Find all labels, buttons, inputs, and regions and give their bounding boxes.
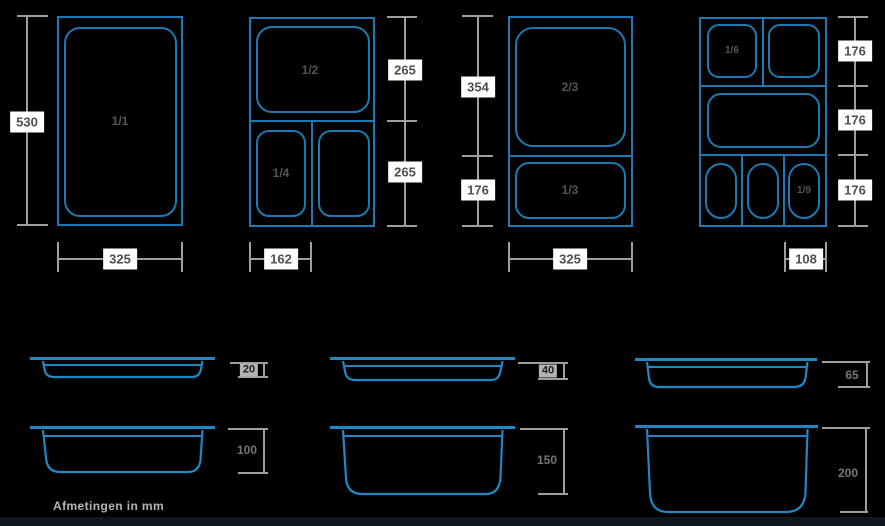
dimension-tick	[462, 155, 493, 157]
dimension-tick	[838, 225, 868, 227]
dimension-tick	[17, 15, 48, 17]
pan-opening	[768, 24, 820, 78]
bottom-strip	[0, 517, 885, 526]
fraction-label: 2/3	[562, 81, 579, 93]
height-dimension-label: 354	[461, 77, 495, 98]
dimension-tick	[462, 15, 493, 17]
pan-opening	[705, 163, 737, 219]
pan-body	[343, 430, 503, 494]
dimensions-unit-note: Afmetingen in mm	[53, 499, 164, 513]
pan-divider	[741, 154, 743, 227]
width-dimension-label: 325	[553, 249, 587, 270]
dimension-tick	[840, 511, 868, 513]
dimension-tick	[822, 427, 870, 429]
dimension-line	[404, 17, 406, 227]
dimension-tick	[784, 242, 786, 272]
pan-body	[43, 361, 203, 377]
fraction-label: 1/3	[562, 184, 579, 196]
pan-profile-40mm	[330, 357, 515, 382]
pan-rim	[330, 357, 515, 360]
dimension-tick	[310, 242, 312, 272]
dimension-line	[263, 362, 265, 378]
dimension-tick	[387, 16, 417, 18]
width-dimension-label: 108	[789, 249, 823, 270]
dimension-tick	[387, 120, 417, 122]
pan-rim	[635, 358, 817, 361]
dimension-line	[263, 428, 265, 474]
dimension-tick	[520, 428, 568, 430]
pan-opening	[707, 93, 820, 148]
fraction-label: 1/2	[302, 64, 319, 76]
height-dimension-label: 176	[838, 110, 872, 131]
depth-dimension-label: 100	[237, 444, 257, 456]
pan-rim	[635, 425, 818, 428]
dimension-tick	[228, 428, 268, 430]
dimension-line	[866, 361, 868, 388]
pan-divider	[311, 120, 313, 227]
pan-body	[647, 429, 808, 512]
depth-dimension-label: 20	[240, 364, 258, 377]
dimension-tick	[838, 16, 868, 18]
dimension-tick	[838, 85, 868, 87]
dimension-line	[563, 428, 565, 495]
pan-profile-200mm	[632, 425, 819, 515]
height-dimension-label: 176	[838, 41, 872, 62]
dimension-line	[865, 427, 867, 513]
dimension-tick	[462, 225, 493, 227]
pan-opening	[747, 163, 779, 219]
height-dimension-label: 176	[461, 180, 495, 201]
dimension-tick	[17, 224, 48, 226]
pan-profile-20mm	[30, 357, 215, 379]
pan-rim	[30, 426, 215, 429]
fraction-label: 1/4	[273, 167, 290, 179]
dimension-tick	[249, 242, 251, 272]
pan-divider	[762, 17, 764, 87]
pan-rim	[330, 426, 515, 429]
fraction-label: 1/9	[797, 186, 811, 196]
dimension-tick	[825, 242, 827, 272]
pan-rim	[30, 357, 215, 360]
pan-divider	[699, 154, 827, 156]
height-dimension-label: 530	[10, 112, 44, 133]
pan-divider	[508, 155, 633, 157]
pan-opening	[318, 130, 370, 217]
fraction-label: 1/6	[725, 46, 739, 56]
width-dimension-label: 162	[264, 249, 298, 270]
gastronorm-sizes-diagram: 1/1 530 325 1/2 1/4 265 265 162	[0, 0, 885, 526]
depth-dimension-label: 200	[838, 467, 858, 479]
pan-body	[647, 362, 808, 387]
pan-profile-65mm	[632, 358, 819, 389]
height-dimension-label: 265	[388, 162, 422, 183]
depth-dimension-label: 40	[539, 365, 557, 378]
dimension-tick	[508, 242, 510, 272]
width-dimension-label: 325	[103, 249, 137, 270]
pan-body	[343, 361, 503, 380]
pan-divider	[783, 154, 785, 227]
depth-dimension-label: 65	[845, 369, 858, 381]
height-dimension-label: 265	[388, 60, 422, 81]
dimension-tick	[181, 242, 183, 272]
height-dimension-label: 176	[838, 180, 872, 201]
fraction-label: 1/1	[112, 115, 129, 127]
pan-profile-150mm	[330, 426, 515, 497]
dimension-tick	[57, 242, 59, 272]
depth-dimension-label: 150	[537, 454, 557, 466]
dimension-tick	[631, 242, 633, 272]
dimension-tick	[822, 361, 870, 363]
dimension-tick	[387, 225, 417, 227]
dimension-tick	[838, 154, 868, 156]
pan-profile-100mm	[30, 426, 215, 475]
dimension-line	[563, 362, 565, 380]
